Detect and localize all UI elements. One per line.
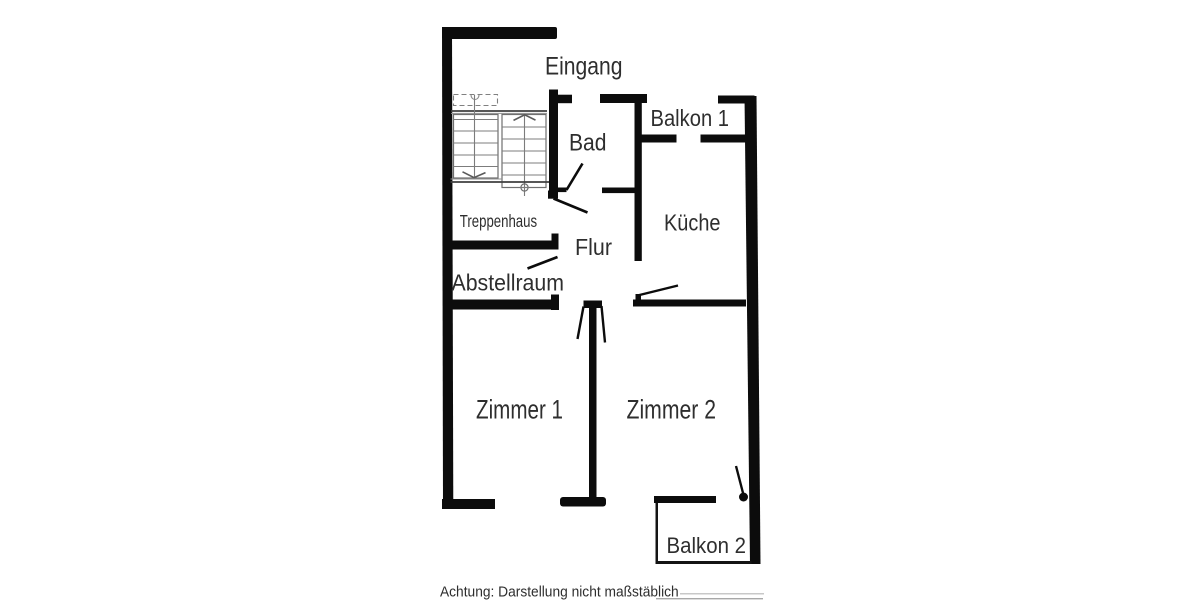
- svg-text:Balkon 1: Balkon 1: [651, 105, 730, 131]
- svg-text:Küche: Küche: [664, 209, 721, 235]
- svg-text:Treppenhaus: Treppenhaus: [460, 211, 537, 231]
- svg-text:Eingang: Eingang: [545, 53, 623, 81]
- svg-text:Bad: Bad: [569, 130, 607, 157]
- svg-text:Zimmer 1: Zimmer 1: [476, 394, 563, 424]
- svg-text:Flur: Flur: [575, 234, 612, 260]
- svg-text:Balkon 2: Balkon 2: [667, 533, 747, 558]
- svg-text:Abstellraum: Abstellraum: [452, 270, 565, 296]
- svg-text:Achtung: Darstellung nicht maß: Achtung: Darstellung nicht maßstäblich: [440, 583, 679, 600]
- svg-text:Zimmer 2: Zimmer 2: [627, 394, 717, 424]
